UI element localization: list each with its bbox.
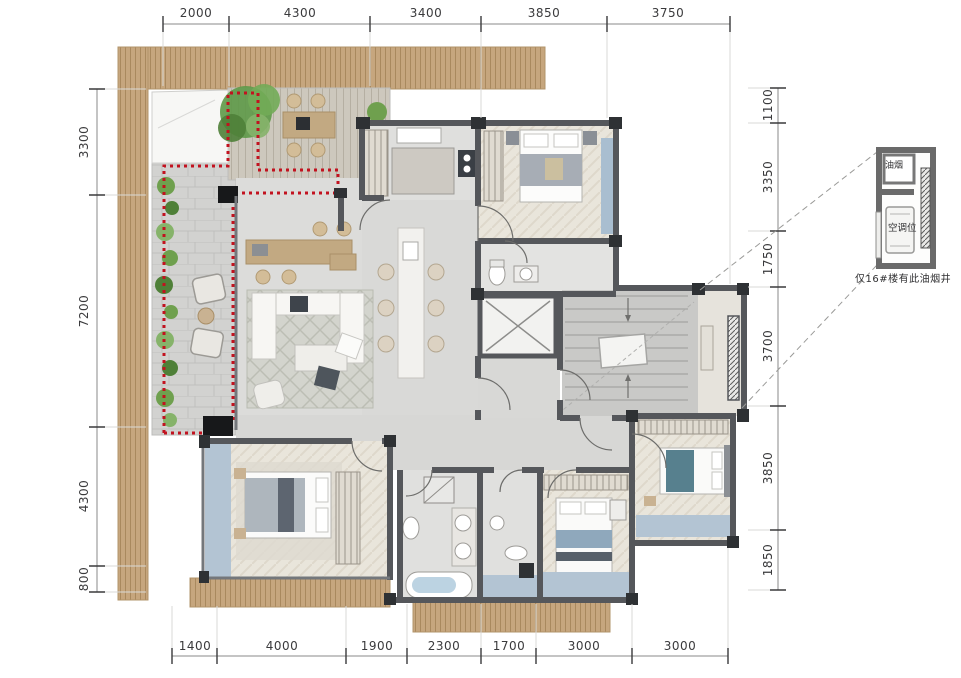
dim-label-bottom-6: 3000 [554,639,614,653]
dim-label-left-1: 3300 [77,112,91,172]
louver-icon [921,168,930,248]
floorplan-drawing [0,0,961,678]
wood-deck-bottom-entry [413,601,610,632]
dim-label-left-2: 7200 [77,281,91,341]
dim-label-bottom-1: 1400 [165,639,225,653]
dim-label-left-3: 4300 [77,466,91,526]
dim-label-top-3: 3400 [396,6,456,20]
elevator [480,296,556,356]
master-balcony [205,444,231,578]
dim-label-right-6: 1850 [761,530,775,590]
cooktop [458,150,476,177]
wood-deck-bottom-master [190,578,390,607]
wood-deck-left [118,47,148,600]
flue-note: 仅16#楼有此油烟井 [855,270,961,285]
master-bedroom [234,462,360,564]
floorplan-canvas: 2000 4300 3400 3850 3750 1400 4000 1900 … [0,0,961,678]
dim-label-right-5: 3850 [761,438,775,498]
dim-label-bottom-4: 2300 [414,639,474,653]
dim-label-left-4: 800 [77,549,91,609]
dim-label-right-2: 3350 [761,147,775,207]
boundary-corner-box [203,416,233,436]
dim-label-top-2: 4300 [270,6,330,20]
dim-label-right-4: 3700 [761,316,775,376]
ac-position-label: 空调位 [888,220,924,234]
dim-label-top-4: 3850 [514,6,574,20]
dim-label-bottom-7: 3000 [650,639,710,653]
dim-label-top-5: 3750 [638,6,698,20]
dim-label-bottom-2: 4000 [252,639,312,653]
flue-shaft-label: 油烟 [885,158,909,171]
dim-label-right-1: 1100 [761,75,775,135]
dim-label-bottom-3: 1900 [347,639,407,653]
dim-label-bottom-5: 1700 [479,639,539,653]
sofa-set [247,290,373,410]
dim-label-top-1: 2000 [166,6,226,20]
dim-label-right-3: 1750 [761,229,775,289]
